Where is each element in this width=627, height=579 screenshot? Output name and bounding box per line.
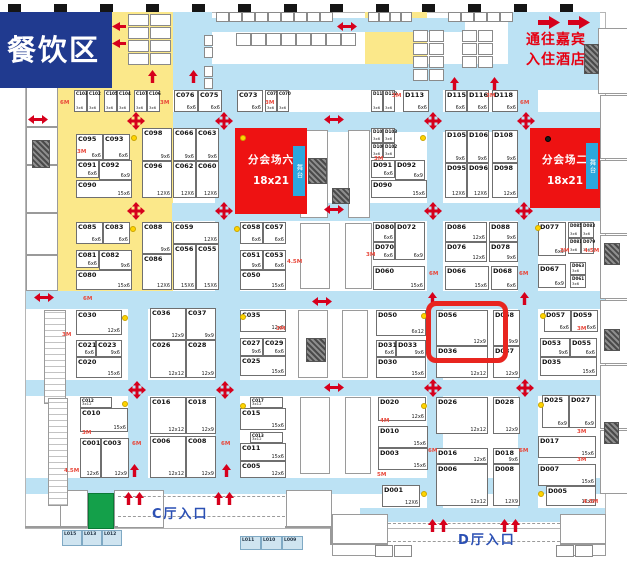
- up-arrow: [450, 77, 459, 90]
- booth-C060[interactable]: C06012X6: [196, 161, 219, 198]
- booth-size: 3x6: [570, 231, 577, 237]
- booth-size: 3x6: [279, 105, 286, 111]
- booth-L010[interactable]: L010: [261, 536, 282, 550]
- booth-D102[interactable]: D1023x6: [383, 143, 395, 158]
- booth-D050[interactable]: D0506x12: [376, 310, 426, 336]
- up-arrow: [148, 70, 157, 83]
- booth-D006[interactable]: D00612x12: [436, 464, 488, 506]
- booth-size: 15x6: [410, 283, 423, 289]
- booth-D033[interactable]: D0339x6: [396, 340, 426, 357]
- booth-C026[interactable]: C02612x12: [150, 340, 186, 378]
- bigright-arrow: [568, 16, 590, 29]
- dimension-label: 6M: [520, 100, 529, 106]
- small-booth: [413, 56, 428, 68]
- booth-size: 6x6: [384, 171, 393, 177]
- up-arrow: [189, 70, 198, 83]
- small-booth: [429, 69, 444, 81]
- booth-D081[interactable]: D0813x6: [568, 238, 581, 254]
- booth-size: 3x12: [82, 401, 92, 407]
- small-booth: [204, 35, 213, 46]
- booth-C057[interactable]: C0576x6: [263, 222, 286, 244]
- booth-size: 12X6: [157, 191, 170, 197]
- booth-C053[interactable]: C0536x6: [263, 250, 286, 270]
- booth-D106[interactable]: D1069x6: [467, 130, 489, 163]
- booth-L009[interactable]: L009: [282, 536, 303, 550]
- booth-id: C011: [242, 444, 260, 452]
- booth-D101[interactable]: D1013x6: [371, 128, 383, 143]
- booth-size: 9x9: [205, 333, 214, 339]
- booth-D096[interactable]: D09612X6: [467, 163, 489, 198]
- booth-D028[interactable]: D02812x9: [493, 397, 520, 434]
- booth-size: 12x9: [505, 371, 518, 377]
- booth-C091[interactable]: C0916x6: [76, 160, 99, 178]
- booth-size: 12X6: [181, 191, 194, 197]
- d-entrance-line: [388, 523, 560, 524]
- booth-D035[interactable]: D03515x6: [540, 357, 597, 376]
- booth-C016[interactable]: C01612x12: [150, 397, 186, 434]
- booth-D018[interactable]: D0189x6: [493, 448, 520, 464]
- booth-C093[interactable]: C0936x6: [103, 134, 130, 160]
- booth-C003[interactable]: C00312x9: [101, 438, 129, 478]
- small-booth: [413, 30, 428, 42]
- structure-room: [598, 28, 627, 94]
- small-booth: [150, 27, 171, 39]
- booth-D092[interactable]: D0926x9: [395, 160, 425, 180]
- booth-id: C057: [265, 223, 283, 231]
- dimension-label: 3M: [265, 100, 274, 106]
- cross-arrow: [424, 379, 442, 397]
- booth-size: 6x6: [275, 263, 284, 269]
- booth-C062[interactable]: C06212X6: [173, 161, 196, 198]
- booth-C096[interactable]: C09612X6: [142, 161, 172, 198]
- upup-arrow: [428, 519, 448, 532]
- structure-room: [300, 223, 330, 289]
- booth-C055[interactable]: C05515X6: [196, 244, 219, 290]
- booth-size: 3x6: [76, 105, 83, 111]
- booth-size: 12X6: [204, 191, 217, 197]
- booth-size: 6x6: [587, 325, 596, 331]
- booth-D068[interactable]: D0686x6: [491, 266, 518, 290]
- dimension-label: 4M: [380, 418, 389, 424]
- booth-D001[interactable]: D00112X6: [382, 485, 420, 507]
- booth-C081[interactable]: C0816x6: [76, 250, 99, 268]
- small-booth: [487, 12, 500, 22]
- small-booth: [326, 33, 341, 46]
- booth-id: C088: [144, 223, 162, 231]
- booth-size: 12x12: [168, 471, 184, 477]
- booth-size: 6x6: [384, 235, 393, 241]
- booth-size: 12x12: [168, 427, 184, 433]
- booth-D057[interactable]: D0576x6: [544, 310, 571, 332]
- small-booth: [204, 47, 213, 58]
- hd-arrow: [324, 383, 344, 392]
- booth-size: 15x6: [117, 283, 130, 289]
- booth-L015[interactable]: L015: [62, 530, 82, 546]
- small-booth: [429, 56, 444, 68]
- booth-size: 12x6: [86, 471, 99, 477]
- booth-D115[interactable]: D1156x6: [445, 90, 467, 112]
- service-booth-green[interactable]: [88, 493, 114, 529]
- booth-D086[interactable]: D08612x6: [445, 222, 487, 242]
- booth-id: C081: [78, 251, 96, 259]
- booth-D111[interactable]: D1113x6: [371, 90, 383, 112]
- small-booth: [281, 12, 294, 22]
- booth-C102[interactable]: C1023x6: [87, 90, 100, 112]
- booth-D031[interactable]: D0316x6: [376, 340, 396, 357]
- dimension-label: 3M: [577, 326, 586, 332]
- left-arrow: [112, 39, 126, 48]
- booth-D070[interactable]: D0706x6: [373, 242, 395, 260]
- booth-C066[interactable]: C0669x6: [173, 128, 196, 161]
- small-booth: [401, 12, 412, 22]
- dimension-label: 3M: [577, 457, 586, 463]
- booth-D098[interactable]: D09812x6: [492, 163, 518, 198]
- booth-C088[interactable]: C0889x6: [142, 222, 172, 254]
- booth-D061[interactable]: D0613x6: [570, 275, 586, 288]
- booth-id: D053: [542, 339, 561, 347]
- cross-arrow: [515, 202, 533, 220]
- stairs: [308, 158, 327, 184]
- booth-C028[interactable]: C02812x9: [186, 340, 216, 378]
- booth-C063[interactable]: C0639x6: [196, 128, 219, 161]
- booth-C021[interactable]: C0216x6: [76, 340, 96, 357]
- small-booth: [150, 40, 171, 52]
- booth-C059[interactable]: C05912X6: [173, 222, 219, 244]
- booth-id: C093: [105, 135, 123, 143]
- structure-room: [600, 160, 627, 234]
- booth-id: C106: [149, 91, 161, 96]
- booth-D026[interactable]: D02612x12: [436, 397, 488, 434]
- dimension-label: 4.5M: [64, 468, 79, 474]
- small-booth: [229, 12, 242, 22]
- booth-D007[interactable]: D00715x6: [538, 464, 596, 486]
- cross-arrow: [127, 112, 145, 130]
- booth-size: 6x9: [121, 173, 130, 179]
- booth-id: D050: [378, 311, 397, 319]
- small-booth: [462, 43, 477, 55]
- cross-arrow: [128, 381, 146, 399]
- booth-D003[interactable]: D00315x6: [378, 448, 428, 470]
- booth-C105[interactable]: C1053x6: [104, 90, 117, 112]
- booth-id: C102: [89, 91, 101, 96]
- booth-size: 15x6: [581, 479, 594, 485]
- pillar-dot: [535, 225, 541, 231]
- cross-arrow: [424, 202, 442, 220]
- booth-size: 6x6: [275, 237, 284, 243]
- booth-id: C104: [119, 91, 131, 96]
- stairs: [604, 243, 620, 265]
- booth-id: C025: [242, 357, 260, 365]
- booth-C083[interactable]: C0836x6: [103, 222, 130, 244]
- booth-C080[interactable]: C08015x6: [76, 270, 132, 290]
- booth-C076[interactable]: C0766x6: [174, 90, 198, 112]
- small-booth: [461, 12, 474, 22]
- booth-D108[interactable]: D1089x6: [492, 130, 518, 163]
- booth-size: 3x6: [385, 105, 392, 111]
- booth-id: D096: [469, 164, 488, 172]
- hotel-direction-text: 通往嘉宾 入住酒店: [512, 30, 600, 71]
- booth-C070[interactable]: C0703x6: [277, 90, 289, 112]
- booth-size: 12X6: [157, 283, 170, 289]
- small-booth: [379, 12, 390, 22]
- booth-D067[interactable]: D0676x9: [538, 264, 566, 288]
- booth-size: 6x6: [385, 350, 394, 356]
- dimension-label: 3M: [374, 156, 383, 162]
- booth-C017[interactable]: C0173x12: [250, 397, 283, 408]
- booth-size: 3x6: [572, 281, 579, 287]
- booth-C036[interactable]: C03612x9: [150, 308, 186, 340]
- cross-arrow: [215, 202, 233, 220]
- stairs: [332, 188, 350, 204]
- dimension-label: 3M: [77, 149, 86, 155]
- small-booth: [128, 14, 149, 26]
- stairs: [604, 422, 619, 444]
- booth-C104[interactable]: C1043x6: [117, 90, 130, 112]
- pillar-dot: [240, 403, 246, 409]
- booth-size: 6x6: [119, 153, 128, 159]
- booth-C073[interactable]: C0736x6: [237, 90, 263, 112]
- small-booth: [150, 53, 171, 65]
- booth-C010[interactable]: C01015x6: [80, 408, 128, 432]
- booth-id: D098: [494, 164, 513, 172]
- booth-size: 3x12: [252, 401, 262, 407]
- booth-id: D005: [548, 487, 567, 495]
- booth-size: 9x6: [509, 457, 518, 463]
- booth-C006[interactable]: C00612x12: [150, 436, 186, 478]
- pillar-dot-black: [545, 136, 551, 142]
- booth-size: 3x12: [252, 436, 262, 442]
- booth-id: D076: [447, 243, 466, 251]
- booth-id: D108: [494, 131, 513, 139]
- booth-L011[interactable]: L011: [240, 536, 261, 550]
- booth-size: 6x6: [507, 105, 516, 111]
- booth-C050[interactable]: C05015x6: [240, 270, 286, 290]
- booth-C082[interactable]: C0829x6: [99, 250, 132, 270]
- booth-D030[interactable]: D03015x6: [376, 357, 426, 378]
- booth-D103[interactable]: D1033x6: [383, 128, 395, 143]
- booth-size: 9x6: [478, 156, 487, 162]
- booth-size: 15x6: [107, 371, 120, 377]
- small-booth: [478, 30, 493, 42]
- booth-D113[interactable]: D1136x6: [403, 90, 429, 112]
- booth-C037[interactable]: C0379x9: [186, 308, 216, 340]
- booth-C056[interactable]: C05615X6: [173, 244, 196, 290]
- booth-size: 9x6: [252, 349, 261, 355]
- booth-L012[interactable]: L012: [102, 530, 122, 546]
- booth-D010[interactable]: D01015x6: [378, 426, 428, 448]
- booth-D083[interactable]: D0833x6: [581, 222, 594, 238]
- booth-size: 3x6: [136, 105, 143, 111]
- booth-D118[interactable]: D1186x6: [492, 90, 518, 112]
- booth-id: D028: [495, 398, 514, 406]
- booth-id: D072: [397, 223, 416, 231]
- pillar-dot: [420, 135, 426, 141]
- up-arrow: [520, 292, 529, 305]
- booth-size: 9x6: [185, 154, 194, 160]
- booth-D008[interactable]: D00812X9: [493, 464, 520, 506]
- booth-size: 12x6: [473, 457, 486, 463]
- booth-C011[interactable]: C01115x6: [240, 443, 286, 461]
- booth-id: C015: [242, 409, 260, 417]
- small-booth: [478, 56, 493, 68]
- booth-size: 6x9: [585, 421, 594, 427]
- booth-size: 6x9: [555, 281, 564, 287]
- booth-size: 12x12: [168, 371, 184, 377]
- booth-C103[interactable]: C1033x6: [74, 90, 87, 112]
- booth-id: D090: [373, 181, 392, 189]
- structure-room: [345, 397, 371, 474]
- structure-room: [342, 310, 368, 378]
- booth-C023[interactable]: C0239x6: [96, 340, 122, 357]
- booth-id: D079: [583, 239, 595, 244]
- stairs: [306, 338, 326, 362]
- highlight-ring-D056: [426, 301, 508, 363]
- booth-C092[interactable]: C0926x9: [99, 160, 132, 180]
- booth-C086[interactable]: C08612X6: [142, 254, 172, 290]
- booth-size: 6x6: [85, 350, 94, 356]
- booth-size: 3x6: [373, 136, 380, 142]
- pillar-dot: [421, 403, 427, 409]
- small-booth: [575, 545, 593, 557]
- booth-size: 12x9: [505, 427, 518, 433]
- booth-size: 12X6: [204, 237, 217, 243]
- booth-D053[interactable]: D0539x6: [540, 338, 570, 357]
- hotel-direction-line1: 通往嘉宾: [526, 32, 586, 48]
- booth-size: 9x6: [456, 156, 465, 162]
- booth-C020[interactable]: C02015x6: [76, 357, 122, 378]
- booth-D091[interactable]: D0916x6: [371, 160, 395, 178]
- booth-id: D026: [438, 398, 457, 406]
- hd-arrow: [34, 293, 54, 302]
- booth-size: 9x6: [208, 154, 217, 160]
- booth-C098[interactable]: C0989x6: [142, 128, 172, 161]
- booth-C090[interactable]: C09015x6: [76, 180, 132, 198]
- hd-arrow: [28, 115, 48, 124]
- booth-C013[interactable]: C0133x12: [250, 432, 283, 443]
- booth-id: C021: [78, 341, 96, 349]
- booth-L013[interactable]: L013: [82, 530, 102, 546]
- booth-D085[interactable]: D0853x6: [568, 222, 581, 238]
- booth-size: 12x12: [470, 499, 486, 505]
- booth-id: C001: [82, 439, 100, 447]
- booth-C095[interactable]: C0956x6: [76, 134, 103, 160]
- small-booth: [341, 33, 356, 46]
- booth-C051[interactable]: C0519x6: [240, 250, 263, 270]
- booth-D090[interactable]: D09015x6: [371, 180, 427, 198]
- bottom-wall: [285, 526, 332, 528]
- booth-id: C086: [144, 255, 162, 263]
- booth-id: L009: [284, 537, 296, 545]
- booth-id: C096: [144, 162, 162, 170]
- booth-size: 6x6: [88, 171, 97, 177]
- booth-size: 6x6: [507, 283, 516, 289]
- booth-id: D091: [373, 161, 392, 169]
- booth-C012[interactable]: C0123x12: [80, 397, 112, 408]
- booth-D066[interactable]: D06615x6: [445, 266, 489, 290]
- small-booth: [251, 33, 266, 46]
- small-booth: [474, 12, 487, 22]
- dimension-label: 6M: [429, 271, 438, 277]
- structure-room: [286, 490, 332, 528]
- booth-D095[interactable]: D09512X6: [445, 163, 467, 198]
- booth-D055[interactable]: D0556x6: [570, 338, 597, 357]
- booth-size: 6x6: [478, 105, 487, 111]
- booth-D017[interactable]: D01715x6: [538, 436, 596, 458]
- booth-size: 6x6: [119, 237, 128, 243]
- booth-D025[interactable]: D0256x9: [542, 395, 569, 428]
- booth-size: 12x9: [201, 371, 214, 377]
- booth-D076[interactable]: D07612x6: [445, 242, 487, 262]
- booth-C030[interactable]: C03012x6: [76, 310, 122, 335]
- booth-D080[interactable]: D0806x6: [373, 222, 395, 242]
- booth-C075[interactable]: C0756x6: [198, 90, 222, 112]
- booth-D105[interactable]: D1059x6: [445, 130, 467, 163]
- dimension-label: 4.5M: [287, 259, 302, 265]
- booth-size: 12x6: [472, 255, 485, 261]
- booth-C025[interactable]: C02515x6: [240, 356, 286, 376]
- booth-id: C056: [175, 245, 193, 253]
- booth-C015[interactable]: C01515x6: [240, 408, 286, 430]
- booth-C005[interactable]: C00512x6: [240, 461, 286, 478]
- booth-C001[interactable]: C00112x6: [80, 438, 101, 478]
- booth-size: 12x6: [107, 328, 120, 334]
- dining-area-banner: 餐饮区: [0, 12, 112, 88]
- booth-size: 9x6: [507, 156, 516, 162]
- booth-id: D102: [385, 144, 397, 149]
- dimension-label: 3M: [82, 430, 91, 436]
- booth-size: 6x6: [92, 153, 101, 159]
- booth-C058[interactable]: C0586x6: [240, 222, 263, 244]
- booth-C107[interactable]: C1073x6: [134, 90, 147, 112]
- booth-C085[interactable]: C0856x6: [76, 222, 103, 244]
- booth-id: C075: [200, 91, 218, 99]
- small-booth: [236, 33, 251, 46]
- booth-D016[interactable]: D01612x6: [436, 448, 488, 464]
- booth-C008[interactable]: C00812x9: [186, 436, 216, 478]
- small-booth: [413, 43, 428, 55]
- small-booth: [556, 545, 574, 557]
- booth-C027[interactable]: C0279x6: [240, 338, 263, 356]
- booth-C106[interactable]: C1063x6: [147, 90, 160, 112]
- booth-D063[interactable]: D0633x6: [570, 262, 586, 275]
- cross-arrow: [215, 112, 233, 130]
- small-booth: [281, 33, 296, 46]
- booth-C029[interactable]: C0296x6: [263, 338, 286, 356]
- booth-size: 6x9: [414, 253, 423, 259]
- booth-id: C085: [78, 223, 96, 231]
- dimension-label: 6M: [60, 100, 69, 106]
- booth-D078[interactable]: D0789x6: [489, 242, 518, 262]
- booth-D072[interactable]: D0726x9: [395, 222, 425, 260]
- booth-id: L015: [64, 531, 76, 539]
- booth-id: C005: [242, 462, 260, 470]
- small-booth: [448, 12, 461, 22]
- booth-size: 6x6: [252, 105, 261, 111]
- booth-D027[interactable]: D0276x9: [569, 395, 596, 428]
- booth-size: 3x6: [385, 151, 392, 157]
- booth-id: D010: [380, 427, 399, 435]
- booth-id: D007: [540, 465, 559, 473]
- booth-D060[interactable]: D06015x6: [373, 266, 425, 290]
- booth-size: 3x6: [583, 231, 590, 237]
- booth-size: 3x6: [149, 105, 156, 111]
- booth-size: 9x6: [559, 350, 568, 356]
- booth-D088[interactable]: D0889x6: [489, 222, 518, 242]
- hd-arrow: [337, 22, 357, 31]
- booth-size: 15x6: [271, 454, 284, 460]
- booth-C018[interactable]: C01812x9: [186, 397, 216, 434]
- booth-id: C029: [265, 339, 283, 347]
